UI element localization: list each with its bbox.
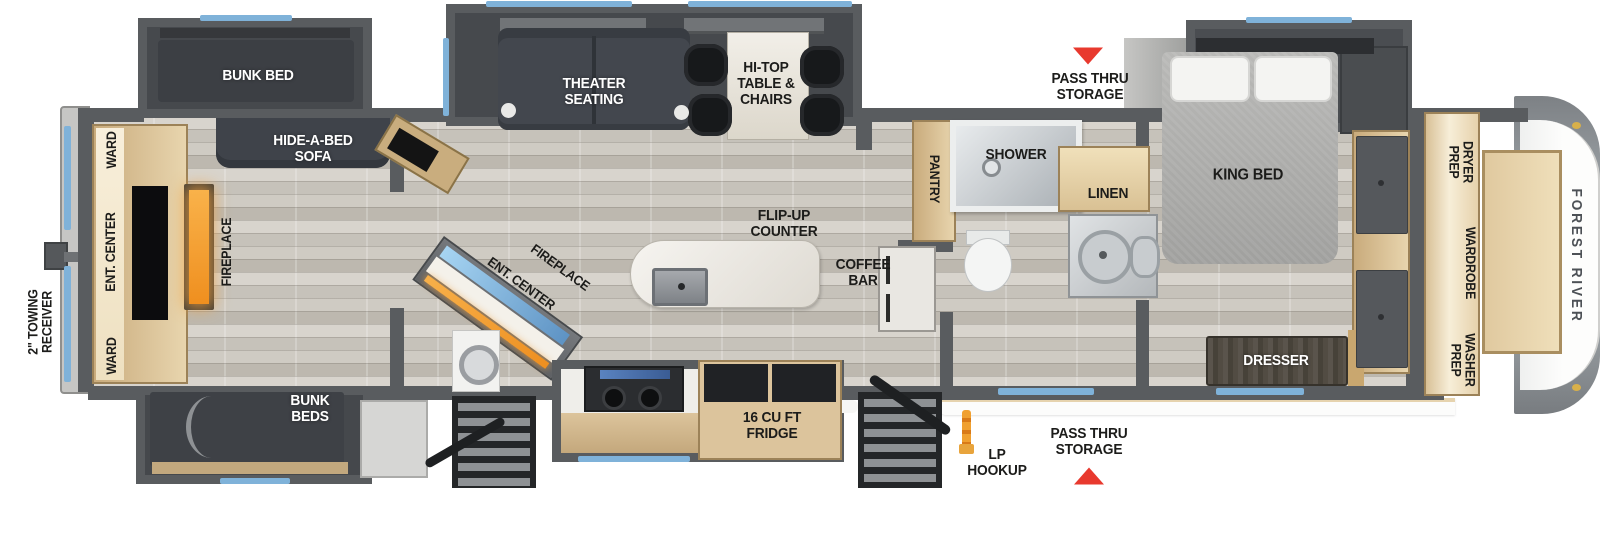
label-coffee-bar: COFFEE BAR [836,257,891,289]
label-ent-center-rear: ENT. CENTER [104,212,118,291]
fridge-top-panel [772,364,836,402]
stove-glass [600,370,670,379]
vanity-sinks [1068,214,1158,298]
label-fridge: 16 CU FT FRIDGE [743,410,801,442]
hi-top-chair [688,94,732,136]
sink-drain [1099,251,1107,259]
tv-screen [132,186,168,320]
label-wardrobe: WARDROBE [1463,227,1477,299]
fridge-top-panel [704,364,768,402]
label-fireplace-rear: FIREPLACE [220,218,234,287]
floorplan-diagram: 2" TOWING RECEIVER WARD ENT. CENTER WARD… [0,0,1600,545]
cap-rivet [1572,384,1581,391]
slide-window-trim [486,1,632,7]
label-hide-a-bed: HIDE-A-BED SOFA [273,133,352,165]
cupholder [501,103,516,118]
slide-window-trim [578,456,690,462]
bedroom-wardrobe-top [1340,46,1408,134]
label-hi-top: HI-TOP TABLE & CHAIRS [737,60,794,108]
rear-window-trim [64,126,71,230]
label-bunk-beds: BUNK BEDS [290,393,329,425]
slide-window-trim [443,38,449,116]
label-shower: SHOWER [985,147,1046,163]
label-pantry: PANTRY [927,155,941,204]
burner [602,386,626,410]
slide-window-trim [1246,17,1352,23]
slide-window-trim [200,15,292,21]
bunk-soffit [160,28,350,38]
bath-wall [940,312,953,388]
forest-river-logo: FOREST RIVER [1568,188,1584,323]
bunk-curve [186,396,237,458]
label-dresser: DRESSER [1243,353,1308,369]
speaker-ring [459,345,499,385]
pass-thru-arrow-down-icon [1073,48,1103,65]
cap-rivet [1572,122,1581,129]
pillow [1170,56,1250,102]
door-handle [1378,314,1384,320]
pass-thru-arrow-up-icon [1074,468,1104,485]
label-flip-up-counter: FLIP-UP COUNTER [751,208,818,240]
stove [584,366,684,412]
cabinet-handle [886,294,890,322]
label-towing-receiver: 2" TOWING RECEIVER [27,289,56,354]
underbody-skirt [938,398,1455,415]
partition-wall [390,308,404,388]
label-washer-prep: WASHER PREP [1448,333,1477,386]
pillow [1254,56,1332,102]
label-bunk-bed: BUNK BED [222,68,293,84]
fireplace-flame [189,190,209,304]
slide-window-trim [220,478,290,484]
hi-top-chair [684,44,728,86]
front-closet [1482,150,1562,354]
faucet [678,283,685,290]
hi-top-chair [800,94,844,136]
slide-window-trim [688,1,852,7]
loft-platform [360,400,428,478]
hi-top-chair [800,46,844,88]
label-dryer-prep: DRYER PREP [1446,141,1475,183]
window-trim [998,388,1094,395]
entry-steps [858,392,942,488]
cupholder [674,105,689,120]
burner [638,386,662,410]
door-handle [1378,180,1384,186]
label-lp-hookup: LP HOOKUP [967,447,1026,479]
wall [88,108,144,122]
rear-window-trim [64,266,71,382]
wall [88,386,140,400]
label-theater-seating: THEATER SEATING [563,76,626,108]
media-cabinet [452,330,500,392]
window-trim [1216,388,1304,395]
sink-bowl [1130,236,1160,278]
label-ward-bottom: WARD [105,337,119,374]
bedroom-wall [1136,300,1149,388]
label-king-bed: KING BED [1213,168,1284,185]
toilet [964,238,1012,292]
label-ward-top: WARD [105,131,119,168]
label-pass-thru-top: PASS THRU STORAGE [1051,71,1128,103]
linen-cabinet [1058,146,1150,212]
label-linen: LINEN [1088,186,1128,202]
bunk-step [152,462,348,474]
label-pass-thru-bottom: PASS THRU STORAGE [1050,426,1127,458]
